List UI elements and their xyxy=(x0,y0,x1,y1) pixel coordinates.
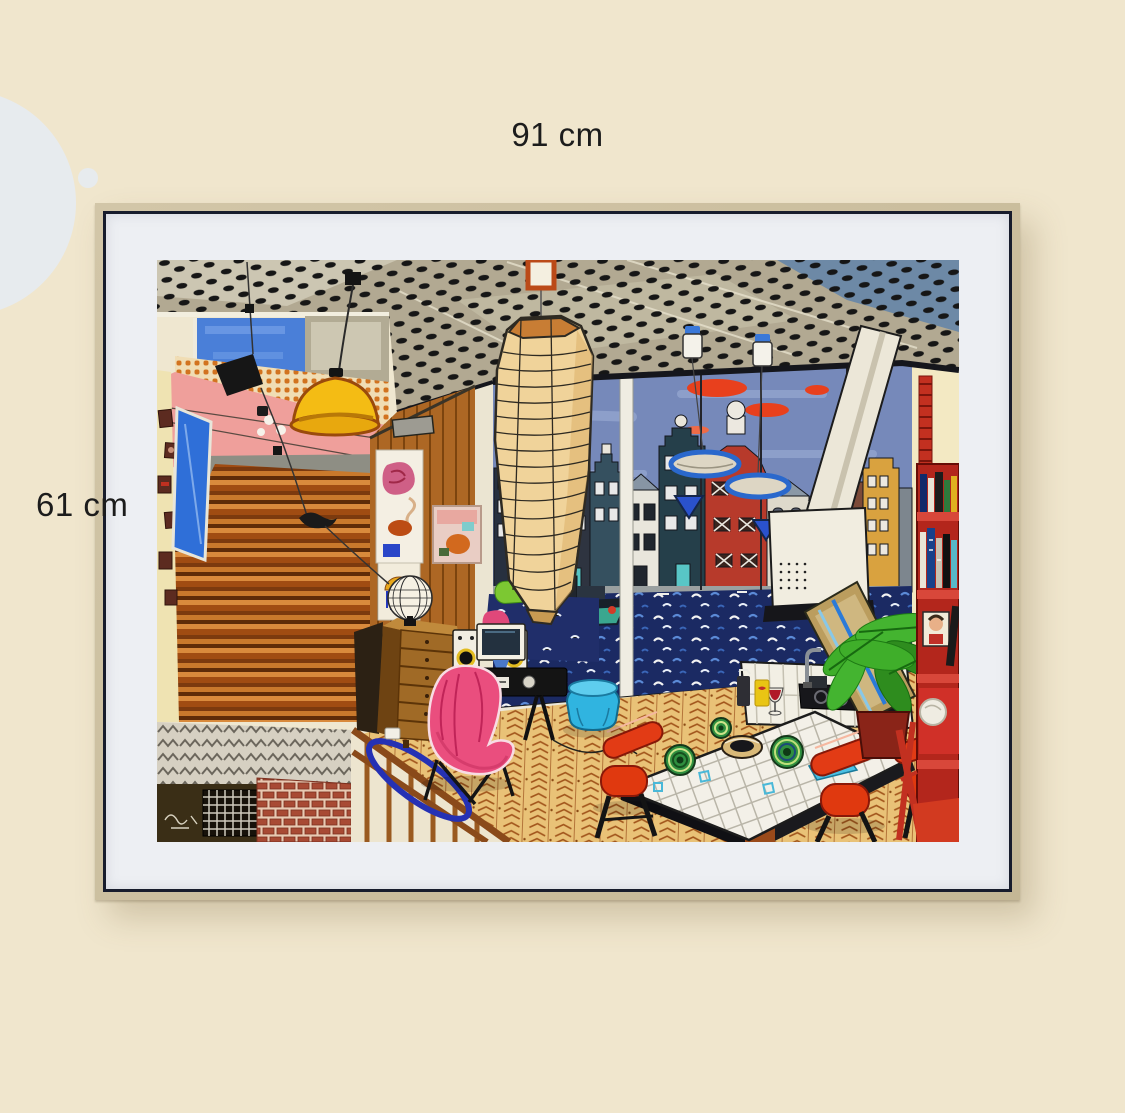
wall-decor-circle-small xyxy=(78,168,98,188)
portrait-picture xyxy=(923,612,949,646)
width-dimension-label: 91 cm xyxy=(95,116,1020,154)
picture-frame[interactable] xyxy=(95,203,1020,900)
height-dimension-label: 61 cm xyxy=(36,486,128,524)
small-framed-picture xyxy=(433,506,481,563)
spiral-plate xyxy=(711,718,731,738)
frame-liner xyxy=(103,211,1012,892)
stair-landing-floor xyxy=(157,722,353,842)
red-wall-ladder xyxy=(919,376,932,468)
spiral-plate xyxy=(665,745,695,775)
soap-dispenser xyxy=(737,676,750,706)
paper-roll xyxy=(920,699,946,725)
wall-lamp-gray xyxy=(392,416,434,437)
product-mockup-page: 91 cm 61 cm xyxy=(0,0,1125,1113)
cyan-pouf xyxy=(563,680,623,738)
wall-decor-circle-large xyxy=(0,90,76,316)
serving-bowl xyxy=(722,736,762,758)
spiral-plate xyxy=(771,736,803,768)
abstract-poster xyxy=(376,450,423,563)
painting-canvas xyxy=(157,260,959,842)
yellow-can xyxy=(755,680,769,706)
framed-artwork xyxy=(157,260,959,842)
frame-mat xyxy=(106,214,1009,889)
